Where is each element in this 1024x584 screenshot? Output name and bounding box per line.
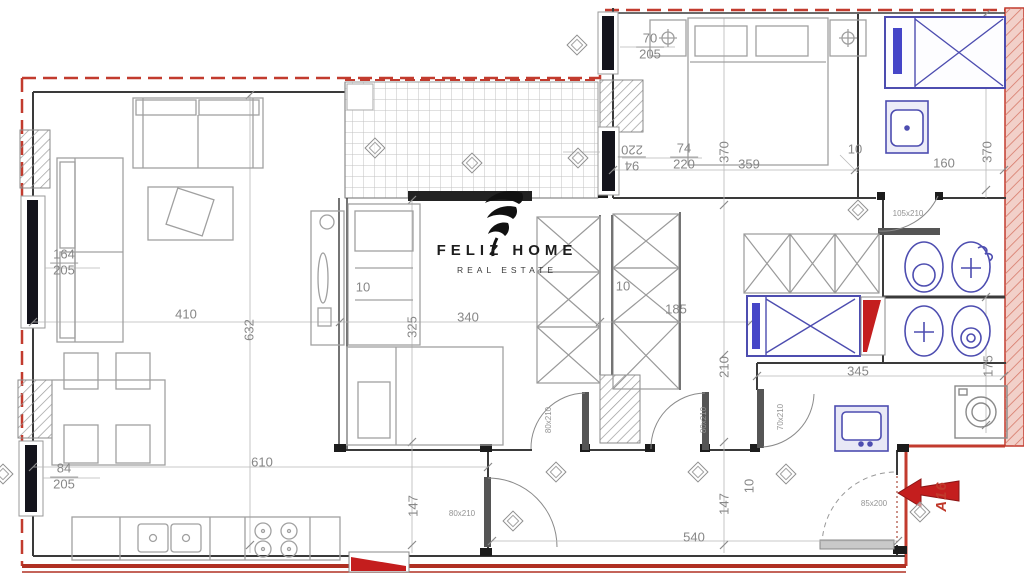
kitchen-sink-basin [171, 524, 201, 552]
brand-logo: FELIZ HOME REAL ESTATE [432, 242, 582, 275]
wardrobe-closets [537, 214, 679, 389]
window-164x205 [27, 200, 38, 324]
entrance-door-swing [822, 472, 896, 545]
brand-name: FELIZ HOME [432, 242, 582, 259]
bathroom1-wardrobe [885, 17, 1005, 88]
unit-number-label: A16 [933, 481, 950, 512]
bed-pillow [358, 382, 390, 438]
window-70x205 [602, 16, 614, 70]
flower-decor-icon [659, 29, 857, 47]
hallway-blue-bed [747, 296, 860, 356]
red-wedge-marker [861, 297, 885, 355]
bedroom2-furniture [311, 204, 503, 445]
bed-pillow [756, 26, 808, 56]
kitchen-sink-basin [138, 524, 168, 552]
exterior-wall-hatched-band [1005, 8, 1024, 446]
door-leaf [582, 392, 589, 450]
toilet [905, 242, 943, 292]
living-room-sofa [133, 98, 263, 168]
window-74x220 [602, 131, 615, 191]
kitchen-counter [72, 517, 340, 560]
red-wedge-marker-bottom [349, 552, 409, 572]
double-bed [688, 18, 828, 165]
wc-fixtures [905, 242, 992, 356]
side-sofa [57, 158, 123, 342]
door-leaf [484, 477, 491, 547]
window-84x205 [25, 445, 37, 512]
dining-table-and-chairs [52, 353, 165, 465]
washing-machine [955, 386, 1007, 438]
coffee-table [148, 187, 233, 240]
door-leaf [757, 389, 764, 448]
balcony-tiled-floor [345, 82, 598, 198]
wall-end-blocks [334, 188, 943, 556]
hallway-wardrobes [744, 234, 879, 293]
bedroom1-furniture [650, 18, 866, 165]
door-leaf [878, 228, 940, 235]
floor-plan-drawing [0, 0, 1024, 584]
bed-single [347, 347, 503, 445]
bed-pillow [695, 26, 747, 56]
floor-plan-page: 7020594220742203703591016037016420584205… [0, 0, 1024, 584]
brand-tagline: REAL ESTATE [432, 265, 582, 275]
door-leaf [702, 392, 709, 450]
stove-burners [255, 523, 297, 557]
bathroom2-sink [835, 406, 888, 451]
bathroom1-sink [886, 101, 928, 153]
bathroom2-fixtures [835, 386, 1007, 451]
